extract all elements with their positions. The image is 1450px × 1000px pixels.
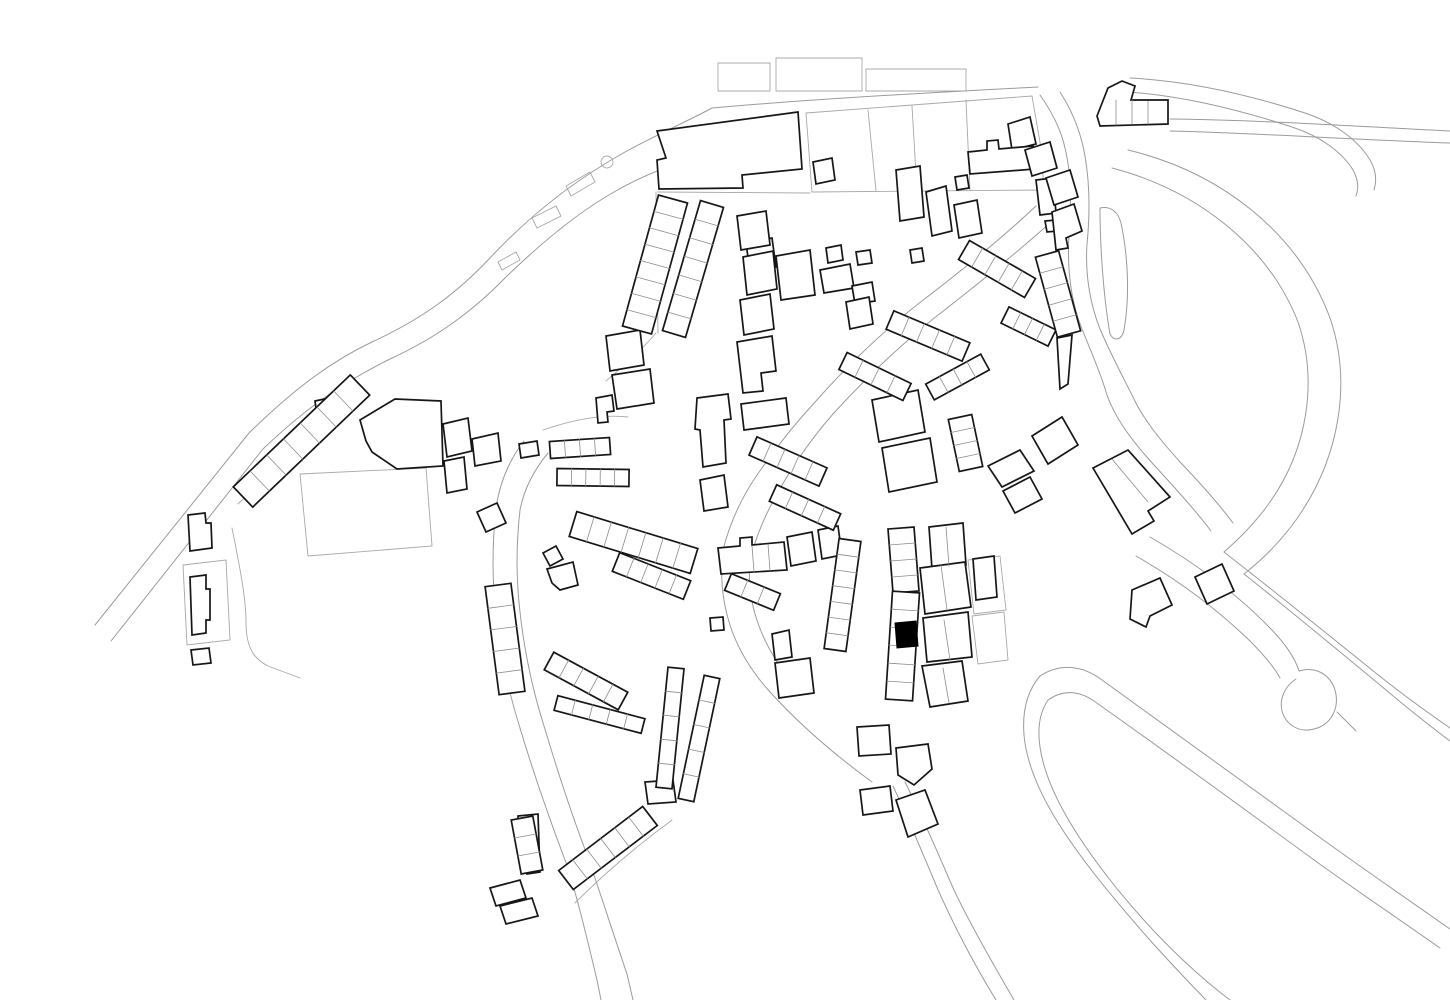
- building-footprint: [606, 330, 644, 371]
- building-footprint: [776, 250, 815, 300]
- road: [712, 87, 1038, 108]
- building-footprint: [360, 399, 443, 469]
- building-footprint: [1008, 117, 1036, 150]
- road: [1100, 208, 1128, 339]
- building-footprint: [954, 200, 982, 238]
- road: [520, 453, 548, 510]
- building-footprint: [896, 166, 924, 221]
- building-footprint: [882, 438, 937, 492]
- building-footprint: [1093, 450, 1170, 534]
- building-footprint: [896, 744, 932, 785]
- parcel-line: [232, 528, 300, 678]
- roads-layer: [95, 78, 1450, 1000]
- terraced-row-footprint: [656, 667, 684, 789]
- building-footprint: [477, 503, 506, 532]
- building-footprint: [472, 433, 501, 466]
- road: [1024, 676, 1206, 1000]
- parcel-line: [868, 110, 876, 191]
- parcel-line: [866, 69, 966, 91]
- terraced-row-footprint: [959, 241, 1036, 298]
- building-footprint: [820, 264, 854, 293]
- building-footprint: [1097, 81, 1168, 126]
- road: [1128, 150, 1341, 574]
- terraced-row-footprint: [554, 696, 645, 734]
- building-footprint: [846, 297, 873, 329]
- building-footprint: [910, 248, 924, 263]
- building-footprint: [543, 546, 563, 566]
- road: [1060, 92, 1233, 523]
- building-footprint: [1032, 417, 1078, 464]
- building-footprint: [1130, 578, 1172, 627]
- building-footprint: [920, 562, 971, 614]
- building-footprint: [826, 245, 843, 263]
- parcel-line: [532, 206, 561, 228]
- road: [1281, 670, 1336, 731]
- building-footprint: [444, 457, 467, 493]
- building-footprint: [772, 630, 792, 660]
- road: [770, 692, 872, 782]
- building-footprint: [775, 658, 814, 698]
- parcel-line: [566, 172, 595, 196]
- highlighted-building: [895, 621, 918, 648]
- building-footprint: [547, 562, 578, 590]
- buildings-layer: [188, 81, 1234, 924]
- building-footprint: [973, 556, 997, 600]
- building-footprint: [743, 251, 777, 295]
- parcel-line: [776, 58, 862, 91]
- road: [1337, 712, 1356, 731]
- building-footprint: [519, 441, 539, 458]
- building-footprint: [443, 418, 472, 457]
- terraced-row-footprint: [678, 675, 720, 801]
- building-footprint: [856, 250, 872, 265]
- road: [1170, 119, 1450, 131]
- building-footprint: [710, 617, 724, 631]
- building-footprint: [612, 369, 654, 409]
- building-footprint: [896, 790, 938, 837]
- building-footprint: [700, 475, 728, 511]
- parcel-line: [300, 468, 432, 556]
- road: [1244, 574, 1450, 741]
- building-footprint: [596, 395, 614, 423]
- building-footprint: [926, 186, 952, 236]
- building-footprint: [737, 336, 776, 393]
- parcel-line: [658, 192, 810, 193]
- building-footprint: [740, 294, 774, 335]
- road: [1039, 700, 1230, 1000]
- terraced-row-footprint: [557, 469, 629, 487]
- building-footprint: [923, 612, 972, 662]
- road: [493, 508, 601, 1000]
- terraced-row-footprint: [886, 311, 970, 361]
- building-footprint: [857, 725, 891, 756]
- highlighted-building-layer: [895, 621, 918, 648]
- parcel-line: [718, 63, 770, 91]
- road: [1224, 552, 1450, 728]
- road: [1170, 131, 1450, 143]
- building-footprint: [741, 398, 789, 430]
- site-plan-page: [0, 0, 1450, 1000]
- building-footprint: [1057, 335, 1072, 389]
- building-footprint: [737, 211, 770, 250]
- building-footprint: [695, 394, 731, 467]
- building-footprint: [860, 786, 893, 815]
- building-footprint: [190, 575, 210, 635]
- building-footprint: [813, 158, 835, 184]
- parcel-line: [543, 416, 628, 430]
- parcel-line: [972, 612, 1008, 664]
- building-footprint: [1195, 564, 1234, 604]
- site-plan-map: [0, 0, 1450, 1000]
- terraced-row-footprint: [749, 437, 827, 486]
- building-footprint: [191, 648, 211, 665]
- building-footprint: [922, 661, 968, 707]
- building-footprint: [955, 175, 969, 190]
- road: [1048, 693, 1440, 948]
- building-footprint: [787, 532, 816, 566]
- building-footprint: [1052, 204, 1082, 250]
- building-footprint: [657, 112, 802, 189]
- parcel-line: [806, 96, 1044, 192]
